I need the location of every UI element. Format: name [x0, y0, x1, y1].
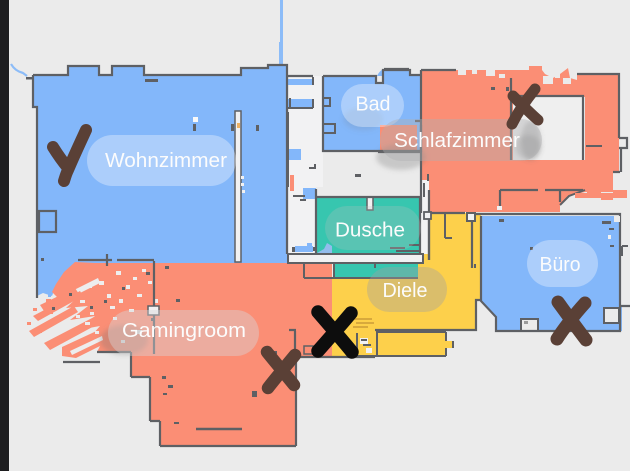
svg-text:Diele: Diele	[383, 279, 428, 302]
svg-text:Bad: Bad	[356, 93, 391, 116]
svg-text:Gamingroom: Gamingroom	[122, 319, 246, 342]
svg-text:Dusche: Dusche	[335, 219, 405, 242]
svg-text:Schlafzimmer: Schlafzimmer	[394, 129, 520, 152]
svg-text:Büro: Büro	[540, 253, 581, 276]
svg-text:Wohnzimmer: Wohnzimmer	[105, 149, 227, 172]
